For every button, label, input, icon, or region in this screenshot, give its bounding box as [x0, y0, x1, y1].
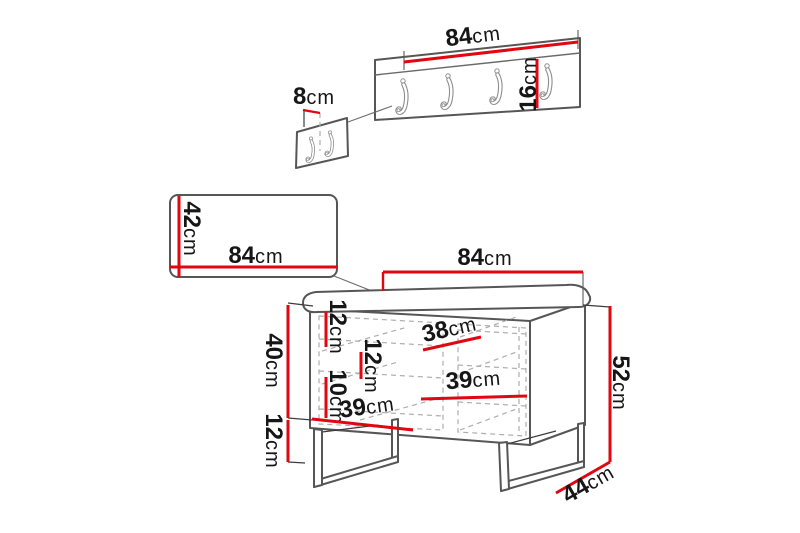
bench-leg-front-right: [499, 442, 509, 491]
panel-height-label: 42cm: [178, 201, 205, 256]
rack-height-label: 16cm: [515, 56, 542, 111]
bench-width-label: 84cm: [457, 244, 512, 271]
bench-side-face: [530, 302, 585, 445]
rack-depth-label: 8cm: [293, 83, 335, 110]
bench-middle-gap-label: 12cm: [359, 338, 386, 393]
bench-leg-front-left: [314, 429, 322, 487]
furniture-dimension-diagram: 84cm 16cm 8cm 42cm 84cm: [0, 0, 800, 533]
bench-body-height-label: 40cm: [260, 333, 287, 388]
panel-width-label: 84cm: [228, 242, 283, 269]
bench-height-label: 52cm: [607, 355, 634, 410]
bench-top-gap-label: 12cm: [324, 299, 351, 354]
bench-leg-height-label: 12cm: [260, 413, 287, 468]
